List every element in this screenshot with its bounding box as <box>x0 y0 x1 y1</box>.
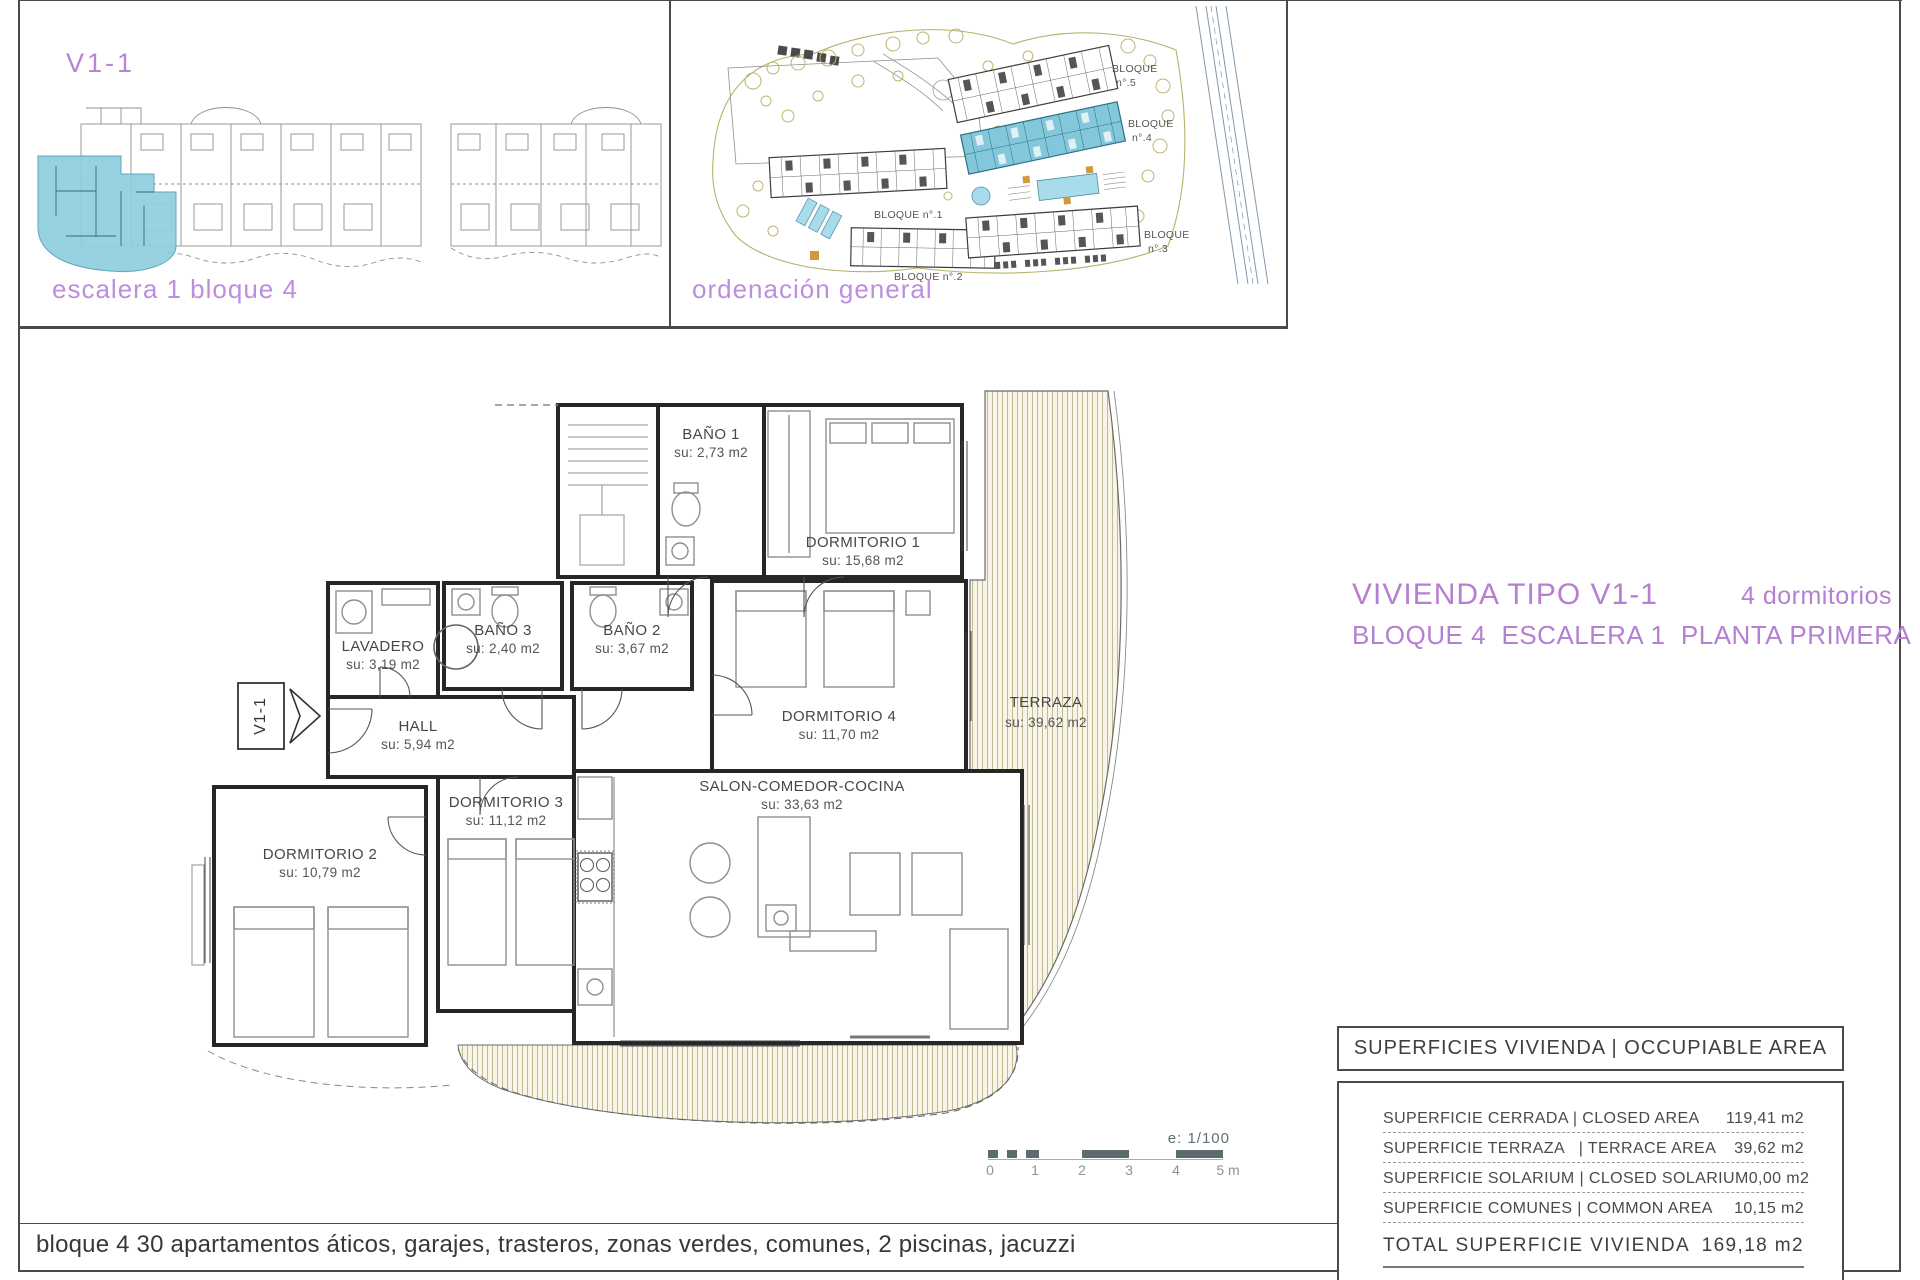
terrace-bottom-area <box>458 1045 1017 1123</box>
site-plan-caption: ordenación general <box>692 274 933 305</box>
entrance-arrow-icon <box>290 689 320 743</box>
room-dormitorio1 <box>764 405 962 577</box>
label-bano3: BAÑO 3 <box>474 622 531 639</box>
svg-text:su: 11,70 m2: su: 11,70 m2 <box>799 727 880 742</box>
svg-text:n°.5: n°.5 <box>1116 77 1136 89</box>
scale-bar: e: 1/100 0 1 2 3 4 5 m <box>988 1130 1238 1180</box>
label-terraza: TERRAZA <box>1010 694 1083 711</box>
unit-tag-text: V1-1 <box>252 697 269 735</box>
area-table-header: SUPERFICIES VIVIENDA | OCCUPIABLE AREA <box>1337 1026 1844 1071</box>
dwelling-type-title: VIVIENDA TIPO V1-1 <box>1352 578 1658 612</box>
svg-text:su: 15,68 m2: su: 15,68 m2 <box>822 553 904 568</box>
table-row: SUPERFICIE CERRADA | CLOSED AREA 119,41 … <box>1383 1103 1804 1133</box>
site-plan-drawing: BLOQUE n°.5 BLOQUE n°.4 BLOQUE n°.1 BLOQ… <box>698 6 1283 284</box>
title-block: VIVIENDA TIPO V1-1 4 dormitorios BLOQUE … <box>1352 578 1892 651</box>
label-dormitorio1: DORMITORIO 1 <box>806 534 921 551</box>
entrance-tag: V1-1 <box>238 683 320 749</box>
svg-text:su: 2,73 m2: su: 2,73 m2 <box>674 445 748 460</box>
floor-plan-drawing: V1-1 BAÑO 1 su: 2,73 m2 DORMITORIO 1 su:… <box>150 385 1135 1190</box>
svg-text:n°.4: n°.4 <box>1132 132 1152 144</box>
label-bano2: BAÑO 2 <box>603 622 660 639</box>
unit-type-code: V1-1 <box>66 48 135 79</box>
balcony-stub <box>192 865 204 965</box>
svg-text:su: 3,67 m2: su: 3,67 m2 <box>595 641 669 656</box>
round-pool <box>972 187 990 205</box>
block1-label: BLOQUE n°.1 <box>874 209 943 221</box>
stairwell <box>558 405 658 577</box>
table-total-row: TOTAL SUPERFICIE VIVIENDA 169,18 m2 <box>1383 1235 1804 1268</box>
plan-sheet: V1-1 <box>0 0 1920 1280</box>
room-walls <box>214 405 1022 1045</box>
svg-text:n°.3: n°.3 <box>1148 243 1168 255</box>
area-table-body: SUPERFICIE CERRADA | CLOSED AREA 119,41 … <box>1337 1081 1844 1280</box>
label-salon: SALON-COMEDOR-COCINA <box>699 778 905 795</box>
table-row: SUPERFICIE SOLARIUM | CLOSED SOLARIUM 0,… <box>1383 1163 1804 1193</box>
label-lavadero: LAVADERO <box>342 638 425 655</box>
block3-label: BLOQUE <box>1144 229 1190 241</box>
area-table: SUPERFICIES VIVIENDA | OCCUPIABLE AREA S… <box>1337 1026 1844 1280</box>
label-dormitorio4: DORMITORIO 4 <box>782 708 897 725</box>
frame-left-border <box>18 0 20 1272</box>
block-stair-floor-title: BLOQUE 4 ESCALERA 1 PLANTA PRIMERA <box>1352 620 1892 651</box>
hill-parcel <box>728 54 983 164</box>
label-hall: HALL <box>398 718 437 735</box>
frame-top-border <box>18 0 1902 1</box>
room-dormitorio4 <box>712 581 966 771</box>
block5-label: BLOQUE <box>1112 63 1158 75</box>
table-row: SUPERFICIE TERRAZA | TERRACE AREA 39,62 … <box>1383 1133 1804 1163</box>
building-strip-2 <box>451 108 661 264</box>
svg-text:su: 2,40 m2: su: 2,40 m2 <box>466 641 540 656</box>
label-dormitorio3: DORMITORIO 3 <box>449 794 564 811</box>
panel-divider-vertical <box>669 0 671 327</box>
garden-dashed-edge <box>208 1051 452 1088</box>
scale-bar-graphic <box>988 1150 1223 1160</box>
sheet-description: bloque 4 30 apartamentos áticos, garajes… <box>36 1231 1076 1259</box>
railway-lines <box>1196 6 1268 284</box>
table-row: SUPERFICIE COMUNES | COMMON AREA 10,15 m… <box>1383 1193 1804 1223</box>
scale-ticks: 0 1 2 3 4 5 m <box>988 1160 1238 1180</box>
room-dormitorio2 <box>214 787 426 1045</box>
hilltop-buildings <box>777 45 839 65</box>
svg-text:su: 3,19 m2: su: 3,19 m2 <box>346 657 420 672</box>
site-block-1 <box>769 148 947 197</box>
locator-caption: escalera 1 bloque 4 <box>52 274 298 305</box>
svg-text:su: 5,94 m2: su: 5,94 m2 <box>381 737 455 752</box>
unit-locator-drawing <box>26 96 666 281</box>
label-dormitorio2: DORMITORIO 2 <box>263 846 378 863</box>
small-pools <box>796 198 842 239</box>
amenity-marker <box>810 251 819 260</box>
svg-text:su: 10,79 m2: su: 10,79 m2 <box>279 865 361 880</box>
svg-text:su: 11,12 m2: su: 11,12 m2 <box>466 813 547 828</box>
site-panel-right-border <box>1286 0 1288 327</box>
amenity-pool-area <box>1006 162 1127 211</box>
block4-label: BLOQUE <box>1128 118 1174 130</box>
bedroom-count: 4 dormitorios <box>1741 582 1892 611</box>
top-panels-divider <box>18 326 1288 329</box>
scale-ratio: e: 1/100 <box>988 1130 1238 1147</box>
svg-text:su: 39,62 m2: su: 39,62 m2 <box>1005 715 1087 730</box>
caption-strip-divider <box>18 1223 1337 1224</box>
label-bano1: BAÑO 1 <box>682 426 739 443</box>
svg-text:su: 33,63 m2: su: 33,63 m2 <box>761 797 843 812</box>
highlighted-unit-shape <box>38 156 176 272</box>
